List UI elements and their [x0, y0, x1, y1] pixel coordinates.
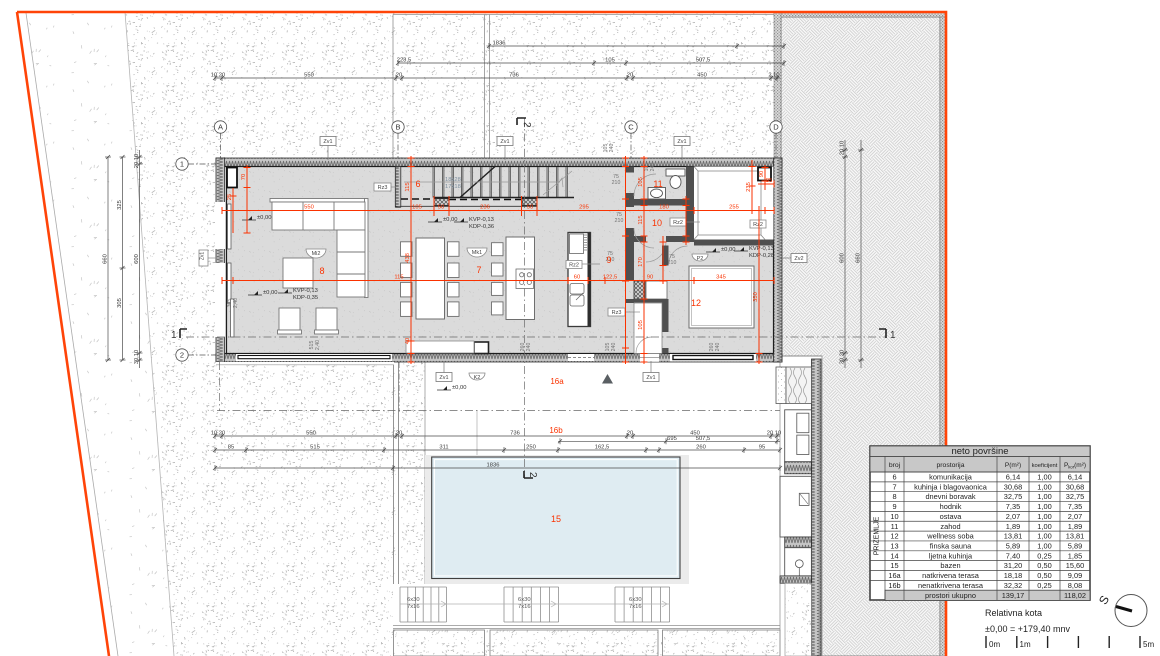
svg-text:2: 2 [527, 472, 538, 478]
svg-text:16a: 16a [888, 571, 901, 580]
svg-text:450: 450 [697, 73, 707, 79]
svg-text:1: 1 [890, 330, 896, 341]
svg-text:438: 438 [405, 253, 411, 263]
svg-text:13: 13 [890, 541, 898, 550]
svg-text:60: 60 [574, 275, 580, 281]
svg-text:32,32: 32,32 [1004, 581, 1023, 590]
svg-text:±0,00: ±0,00 [257, 215, 271, 221]
svg-text:9: 9 [606, 255, 611, 265]
svg-text:6: 6 [892, 473, 896, 482]
svg-text:30,68: 30,68 [1004, 482, 1023, 491]
svg-text:7x16: 7x16 [407, 604, 420, 610]
svg-text:7x16: 7x16 [629, 604, 642, 610]
svg-text:115: 115 [405, 182, 411, 191]
svg-text:210: 210 [615, 218, 624, 224]
svg-text:600: 600 [134, 254, 140, 264]
svg-text:11: 11 [891, 522, 899, 531]
svg-text:KDP-0,28: KDP-0,28 [749, 253, 774, 259]
svg-text:koeficijent: koeficijent [1032, 463, 1058, 469]
svg-text:235: 235 [746, 182, 752, 192]
svg-text:KVP-0,13: KVP-0,13 [469, 217, 494, 223]
svg-text:KDP-0,36: KDP-0,36 [469, 224, 494, 230]
svg-text:10: 10 [890, 512, 898, 521]
svg-text:250: 250 [526, 445, 536, 451]
svg-text:0,50: 0,50 [1037, 571, 1051, 580]
svg-text:20,10: 20,10 [840, 141, 846, 156]
svg-text:P(m²): P(m²) [1005, 462, 1021, 469]
svg-text:345: 345 [716, 275, 726, 281]
svg-text:KVP-0,13: KVP-0,13 [749, 246, 774, 252]
svg-text:210: 210 [612, 180, 621, 186]
svg-text:25: 25 [227, 194, 233, 200]
svg-text:17x18: 17x18 [445, 184, 461, 190]
svg-text:20: 20 [396, 73, 402, 79]
svg-text:A: A [218, 123, 223, 132]
svg-text:B: B [395, 123, 400, 132]
svg-text:115: 115 [638, 215, 644, 224]
svg-text:1,89: 1,89 [1006, 522, 1020, 531]
svg-text:Rz2: Rz2 [569, 263, 579, 269]
svg-text:105: 105 [412, 205, 422, 211]
svg-text:7,40: 7,40 [1006, 551, 1020, 560]
svg-text:5,89: 5,89 [1068, 541, 1082, 550]
svg-text:16a: 16a [550, 377, 564, 386]
svg-text:1,00: 1,00 [1037, 473, 1051, 482]
svg-text:Zv1: Zv1 [200, 252, 206, 261]
svg-text:736: 736 [510, 431, 520, 437]
svg-text:hodnik: hodnik [940, 502, 962, 511]
svg-text:20: 20 [627, 431, 633, 437]
svg-text:255: 255 [729, 205, 739, 211]
svg-text:KDP-0,35: KDP-0,35 [293, 295, 318, 301]
svg-text:9,09: 9,09 [1068, 571, 1082, 580]
svg-text:16b: 16b [888, 581, 900, 590]
svg-text:105: 105 [605, 58, 615, 64]
svg-text:20,10: 20,10 [134, 154, 140, 169]
svg-text:Zv1: Zv1 [500, 139, 509, 145]
svg-text:1,00: 1,00 [1037, 541, 1051, 550]
svg-text:1,00: 1,00 [1037, 532, 1051, 541]
svg-text:70: 70 [241, 174, 247, 180]
svg-text:295: 295 [579, 205, 589, 211]
svg-text:1,00: 1,00 [1037, 502, 1051, 511]
svg-text:2: 2 [521, 122, 532, 128]
svg-text:550: 550 [304, 205, 314, 211]
svg-text:0,25: 0,25 [1037, 581, 1051, 590]
svg-text:5,89: 5,89 [1006, 541, 1020, 550]
svg-text:236: 236 [480, 205, 490, 211]
svg-text:15: 15 [551, 514, 561, 524]
svg-text:118,02: 118,02 [1064, 591, 1086, 600]
svg-text:7x16: 7x16 [518, 604, 531, 610]
svg-text:240: 240 [609, 144, 615, 153]
svg-text:13,81: 13,81 [1066, 532, 1085, 541]
svg-text:±0,00: ±0,00 [721, 247, 735, 253]
svg-text:P2: P2 [697, 256, 704, 262]
svg-text:325: 325 [117, 200, 123, 210]
svg-text:8: 8 [892, 492, 896, 501]
svg-text:prostori ukupno: prostori ukupno [925, 591, 976, 600]
svg-text:10: 10 [652, 218, 662, 228]
svg-text:natkrivena terasa: natkrivena terasa [922, 571, 980, 580]
svg-text:16b: 16b [549, 426, 563, 435]
svg-text:Mi2: Mi2 [312, 251, 321, 257]
svg-text:ljetna kuhinja: ljetna kuhinja [929, 551, 973, 560]
svg-text:240: 240 [611, 343, 617, 352]
svg-text:±0,00: ±0,00 [263, 290, 277, 296]
svg-text:2,10: 2,10 [768, 73, 779, 79]
svg-text:180: 180 [659, 205, 669, 211]
svg-text:C: C [628, 123, 634, 132]
svg-text:1m: 1m [1020, 640, 1031, 649]
svg-text:85: 85 [766, 178, 772, 184]
svg-text:122,5: 122,5 [603, 275, 618, 281]
svg-text:105: 105 [638, 177, 644, 187]
svg-text:311: 311 [439, 445, 448, 451]
svg-text:260: 260 [696, 445, 706, 451]
svg-text:6x30: 6x30 [518, 597, 531, 603]
svg-text:14: 14 [890, 551, 898, 560]
svg-text:170: 170 [638, 257, 644, 267]
svg-text:Zv1: Zv1 [646, 375, 655, 381]
svg-text:Zv1: Zv1 [439, 375, 448, 381]
svg-text:9: 9 [892, 502, 896, 511]
svg-text:1,00: 1,00 [1037, 522, 1051, 531]
svg-text:30,10: 30,10 [134, 350, 140, 365]
svg-text:0,50: 0,50 [1037, 561, 1051, 570]
svg-text:20: 20 [396, 431, 402, 437]
svg-text:6x30: 6x30 [629, 597, 642, 603]
svg-text:1,89: 1,89 [1068, 522, 1082, 531]
svg-text:90: 90 [759, 171, 765, 177]
svg-text:6: 6 [415, 179, 420, 189]
svg-text:11: 11 [653, 179, 662, 189]
svg-text:210: 210 [668, 260, 677, 266]
svg-text:40: 40 [405, 338, 411, 344]
svg-text:8: 8 [319, 266, 324, 276]
svg-text:Rz3: Rz3 [612, 310, 622, 316]
svg-text:1: 1 [171, 330, 177, 341]
svg-text:105: 105 [638, 320, 644, 330]
svg-text:2: 2 [180, 351, 184, 360]
svg-text:7,35: 7,35 [1006, 502, 1020, 511]
svg-text:32,75: 32,75 [1066, 492, 1085, 501]
svg-text:nenatkrivena terasa: nenatkrivena terasa [918, 581, 984, 590]
svg-text:0,25: 0,25 [1037, 551, 1051, 560]
svg-text:1,00: 1,00 [1037, 482, 1051, 491]
svg-text:515: 515 [310, 445, 320, 451]
svg-text:7: 7 [476, 265, 481, 275]
svg-text:85: 85 [228, 445, 234, 451]
svg-text:507,5: 507,5 [696, 58, 711, 64]
svg-text:neto površine: neto površine [951, 446, 1008, 457]
svg-text:Zv2: Zv2 [794, 256, 803, 262]
svg-text:D: D [773, 123, 779, 132]
svg-text:1836: 1836 [493, 41, 506, 47]
svg-text:240: 240 [715, 343, 721, 352]
svg-text:kuhinja i blagovaonica: kuhinja i blagovaonica [914, 482, 988, 491]
svg-text:30,68: 30,68 [1066, 482, 1085, 491]
svg-text:240: 240 [526, 343, 532, 352]
svg-text:7: 7 [892, 482, 896, 491]
svg-text:Zv1: Zv1 [677, 139, 686, 145]
svg-text:Rz2: Rz2 [673, 220, 683, 226]
svg-text:6,14: 6,14 [1006, 473, 1020, 482]
svg-text:1: 1 [180, 160, 184, 169]
svg-text:6,14: 6,14 [1068, 473, 1082, 482]
svg-text:18,18: 18,18 [1004, 571, 1023, 580]
svg-text:31,20: 31,20 [1004, 561, 1023, 570]
svg-text:20: 20 [627, 73, 633, 79]
svg-text:695: 695 [667, 436, 677, 442]
svg-text:2,40: 2,40 [315, 340, 321, 350]
svg-text:507,5: 507,5 [696, 436, 711, 442]
svg-text:Relativna kota: Relativna kota [985, 608, 1042, 618]
svg-text:30,20: 30,20 [840, 350, 846, 365]
svg-text:dnevni boravak: dnevni boravak [925, 492, 975, 501]
svg-text:2,40: 2,40 [233, 298, 239, 308]
svg-text:13,81: 13,81 [1004, 532, 1023, 541]
svg-text:PRIZEMLJE: PRIZEMLJE [874, 516, 881, 555]
svg-text:162,5: 162,5 [595, 445, 610, 451]
svg-text:550: 550 [306, 431, 316, 437]
svg-text:K2: K2 [474, 375, 481, 381]
svg-text:15: 15 [890, 561, 898, 570]
svg-text:12: 12 [890, 532, 898, 541]
svg-text:1,00: 1,00 [1037, 512, 1051, 521]
svg-text:±0,00: ±0,00 [452, 385, 466, 391]
svg-text:10,20: 10,20 [211, 73, 226, 79]
svg-text:KVP-0,13: KVP-0,13 [293, 288, 318, 294]
svg-text:240: 240 [650, 163, 656, 172]
svg-text:finska sauna: finska sauna [930, 541, 972, 550]
svg-text:prostorija: prostorija [937, 462, 965, 469]
svg-text:±0,00 = +179,40 mnv: ±0,00 = +179,40 mnv [985, 624, 1070, 634]
svg-text:1836: 1836 [487, 463, 500, 469]
svg-text:1,00: 1,00 [1037, 492, 1051, 501]
svg-text:550: 550 [304, 73, 314, 79]
svg-text:1,85: 1,85 [1068, 551, 1082, 560]
svg-text:32,75: 32,75 [1004, 492, 1023, 501]
svg-text:223,5: 223,5 [397, 58, 412, 64]
svg-text:90: 90 [647, 275, 653, 281]
svg-text:bazen: bazen [940, 561, 960, 570]
svg-text:305: 305 [117, 298, 123, 308]
svg-text:15,60: 15,60 [1066, 561, 1085, 570]
svg-text:660: 660 [103, 254, 109, 264]
svg-text:18x28: 18x28 [445, 177, 461, 183]
svg-text:Zv1: Zv1 [323, 139, 332, 145]
svg-text:600: 600 [840, 253, 846, 263]
svg-text:8,08: 8,08 [1068, 581, 1082, 590]
svg-text:660: 660 [856, 253, 862, 263]
svg-text:broj: broj [889, 462, 901, 469]
svg-text:Pkor(m²): Pkor(m²) [1064, 462, 1086, 470]
svg-text:5m: 5m [1143, 640, 1154, 649]
svg-text:50: 50 [438, 205, 444, 211]
svg-text:wellness soba: wellness soba [926, 532, 974, 541]
svg-text:12: 12 [691, 298, 701, 308]
svg-text:50: 50 [527, 205, 533, 211]
svg-text:139,17: 139,17 [1002, 591, 1025, 600]
svg-text:10,20: 10,20 [211, 431, 226, 437]
svg-text:zahod: zahod [940, 522, 960, 531]
svg-text:6x30: 6x30 [407, 597, 420, 603]
svg-text:2,07: 2,07 [1068, 512, 1082, 521]
svg-text:2,07: 2,07 [1006, 512, 1020, 521]
svg-text:115: 115 [394, 275, 403, 281]
svg-text:736: 736 [509, 73, 519, 79]
svg-text:0m: 0m [989, 640, 1000, 649]
svg-text:Rz3: Rz3 [378, 185, 388, 191]
svg-text:350: 350 [753, 292, 759, 302]
svg-text:95: 95 [759, 445, 765, 451]
svg-text:komunikacija: komunikacija [929, 473, 973, 482]
svg-text:Mk1: Mk1 [472, 250, 482, 256]
svg-text:7,35: 7,35 [1068, 502, 1082, 511]
svg-text:Rz2: Rz2 [753, 222, 763, 228]
svg-text:ostava: ostava [940, 512, 963, 521]
svg-text:20,10: 20,10 [767, 431, 782, 437]
